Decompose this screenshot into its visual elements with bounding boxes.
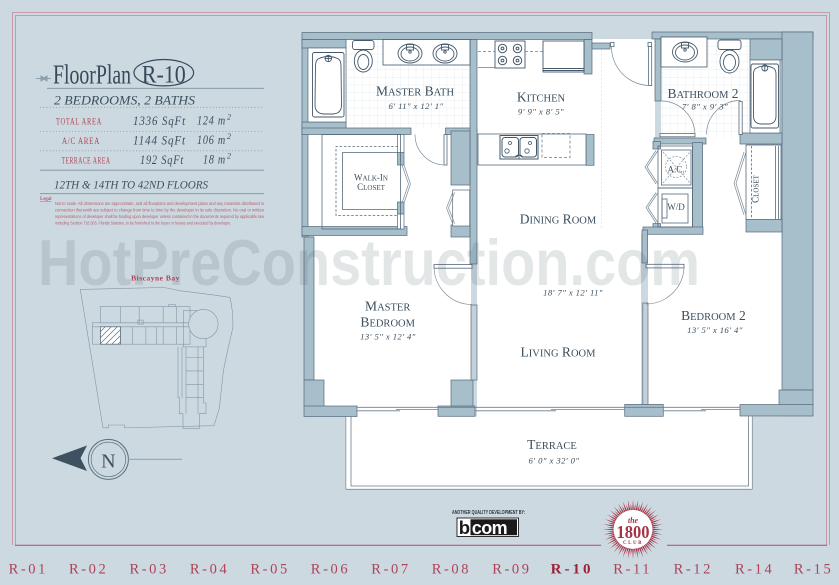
svg-text:b: b: [459, 517, 470, 538]
svg-text:R-08: R-08: [432, 562, 471, 578]
svg-text:TERRACE AREA: TERRACE AREA: [62, 157, 111, 167]
svg-text:R-04: R-04: [190, 562, 229, 578]
svg-text:com: com: [472, 518, 507, 538]
svg-text:HotPreConstruction.com: HotPreConstruction.com: [38, 226, 700, 299]
svg-text:R-11: R-11: [613, 562, 652, 578]
svg-text:124 m: 124 m: [197, 112, 226, 127]
svg-text:representations of developer s: representations of developer shall be bi…: [55, 214, 264, 219]
svg-text:2: 2: [227, 132, 231, 141]
svg-text:2: 2: [227, 152, 231, 161]
svg-text:WALK-IN: WALK-IN: [354, 173, 388, 183]
svg-text:1336 SqFt: 1336 SqFt: [133, 113, 186, 128]
svg-text:CLOSET: CLOSET: [751, 174, 761, 203]
svg-text:7′ 8″ x 9′ 3″: 7′ 8″ x 9′ 3″: [682, 102, 728, 112]
svg-text:9′ 9″ x 8′ 5″: 9′ 9″ x 8′ 5″: [518, 107, 564, 117]
svg-text:R-10: R-10: [142, 62, 186, 89]
svg-text:R-06: R-06: [311, 562, 350, 578]
svg-text:R-09: R-09: [492, 562, 531, 578]
svg-text:18 m: 18 m: [203, 151, 226, 166]
svg-text:13′ 5″ x 12′ 4″: 13′ 5″ x 12′ 4″: [360, 331, 416, 341]
svg-text:R-14: R-14: [735, 562, 774, 578]
svg-text:Legal: Legal: [40, 197, 52, 202]
svg-text:N: N: [101, 451, 115, 473]
svg-text:6′ 11″ x 12′ 1″: 6′ 11″ x 12′ 1″: [389, 101, 444, 111]
svg-text:CLOSET: CLOSET: [357, 182, 386, 192]
svg-text:2 BEDROOMS, 2 BATHS: 2 BEDROOMS, 2 BATHS: [54, 94, 196, 108]
svg-text:connection therewith are subje: connection therewith are subject to chan…: [55, 208, 264, 213]
svg-text:R-03: R-03: [129, 562, 168, 578]
svg-text:R-01: R-01: [9, 562, 48, 578]
svg-text:1144 SqFt: 1144 SqFt: [133, 133, 186, 148]
svg-text:R-02: R-02: [69, 562, 108, 578]
svg-text:W/D: W/D: [667, 202, 685, 212]
svg-text:2: 2: [227, 113, 231, 122]
svg-text:FloorPlan: FloorPlan: [53, 59, 131, 89]
svg-text:R-15: R-15: [794, 562, 833, 578]
svg-text:1800: 1800: [617, 522, 650, 542]
svg-text:6′ 0″ x 32′ 0″: 6′ 0″ x 32′ 0″: [529, 456, 580, 466]
svg-text:Not to scale. All dimensions a: Not to scale. All dimensions are approxi…: [55, 201, 264, 206]
svg-text:A.C.: A.C.: [667, 165, 684, 175]
svg-text:106 m: 106 m: [197, 132, 226, 147]
svg-text:TOTAL AREA: TOTAL AREA: [56, 117, 102, 127]
svg-text:including Section 718.503, Flo: including Section 718.503, Florida Statu…: [55, 221, 231, 226]
svg-text:CLUB: CLUB: [623, 541, 643, 546]
svg-text:12TH & 14TH TO 42ND FLOORS: 12TH & 14TH TO 42ND FLOORS: [54, 180, 208, 192]
svg-text:192 SqFt: 192 SqFt: [140, 152, 184, 167]
svg-text:R-12: R-12: [674, 562, 713, 578]
svg-text:A/C AREA: A/C AREA: [62, 137, 100, 147]
svg-text:R-05: R-05: [250, 562, 289, 578]
svg-text:R-10: R-10: [551, 562, 594, 578]
svg-text:13′ 5″ x 16′ 4″: 13′ 5″ x 16′ 4″: [687, 325, 743, 335]
svg-text:R-07: R-07: [371, 562, 410, 578]
svg-text:ANOTHER QUALITY DEVELOPMENT BY: ANOTHER QUALITY DEVELOPMENT BY:: [452, 510, 525, 516]
